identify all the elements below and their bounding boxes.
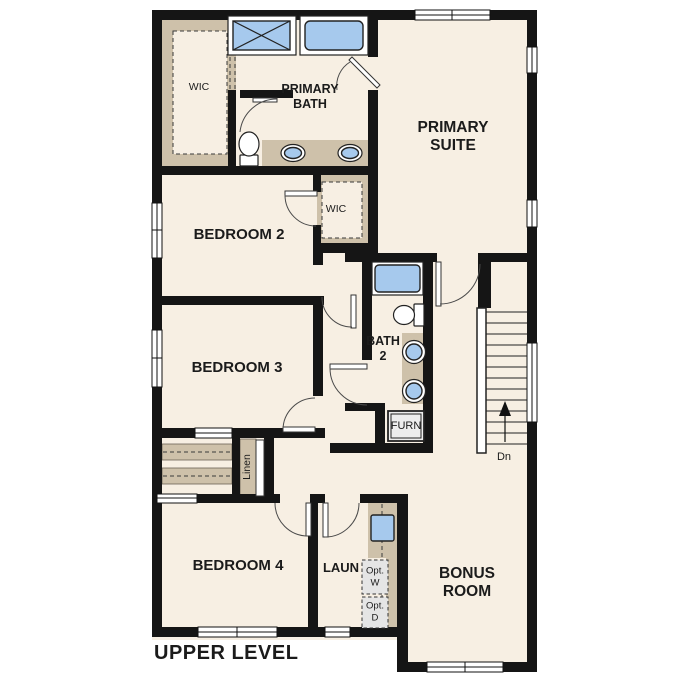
- shower: [228, 16, 296, 55]
- sink-bath2-lower: [403, 380, 426, 403]
- window: [527, 343, 537, 422]
- label-text: Dn: [497, 451, 511, 463]
- label-bedroom-2: BEDROOM 2: [194, 227, 285, 244]
- linen-door: [256, 440, 264, 496]
- label-optional-washer: Opt.W: [366, 566, 384, 589]
- label-text: BEDROOM 2: [194, 227, 285, 244]
- label-text: WIC: [189, 82, 209, 94]
- closet-bypass-door: [195, 428, 232, 438]
- label-primary-bath: PRIMARYBATH: [281, 82, 338, 112]
- label-text: BEDROOM 4: [193, 558, 284, 575]
- window: [198, 627, 277, 637]
- label-text: LAUN: [323, 561, 359, 575]
- label-stairs-down: Dn: [497, 451, 511, 463]
- label-text: BATH: [281, 97, 338, 112]
- label-text: WIC: [326, 204, 346, 216]
- window: [527, 47, 537, 73]
- label-text: ROOM: [439, 583, 495, 601]
- stair-railing: [477, 308, 486, 453]
- label-text: W: [366, 577, 384, 589]
- label-bonus-room: BONUSROOM: [439, 565, 495, 601]
- sink-bath2-upper: [403, 341, 426, 364]
- toilet-bath2: [394, 304, 425, 326]
- label-text: D: [366, 612, 384, 624]
- closet-bypass-door: [157, 494, 197, 503]
- label-text: Linen: [242, 454, 254, 480]
- toilet-primary: [239, 132, 259, 166]
- label-wic-primary: WIC: [189, 82, 209, 94]
- label-text: FURN: [391, 420, 422, 432]
- label-text: 2: [366, 349, 400, 364]
- label-bedroom-3: BEDROOM 3: [192, 360, 283, 377]
- window: [427, 662, 503, 672]
- label-bath-2: BATH2: [366, 334, 400, 364]
- label-text: BATH: [366, 334, 400, 349]
- laundry-sink: [371, 515, 394, 541]
- label-furnace: FURN: [391, 420, 422, 432]
- label-text: Opt.: [366, 601, 384, 613]
- page-title: UPPER LEVEL: [154, 642, 298, 665]
- bathtub-primary: [300, 16, 368, 55]
- label-text: PRIMARY: [281, 82, 338, 97]
- floor-plan-page: WIC PRIMARYBATH PRIMARYSUITE BEDROOM 2 W…: [0, 0, 687, 687]
- window: [152, 203, 162, 258]
- floor-plan-drawing: [0, 0, 687, 687]
- window: [325, 627, 350, 637]
- label-text: PRIMARY: [418, 119, 489, 137]
- sink-primary-left: [281, 145, 305, 162]
- window: [415, 10, 490, 20]
- label-laundry: LAUN: [323, 561, 359, 575]
- label-wic-bedroom-2: WIC: [326, 204, 346, 216]
- window: [527, 200, 537, 227]
- bathtub-bath2: [372, 262, 423, 295]
- label-text: SUITE: [418, 137, 489, 155]
- window: [152, 330, 162, 387]
- label-optional-dryer: Opt.D: [366, 601, 384, 624]
- label-linen: Linen: [242, 454, 254, 480]
- label-bedroom-4: BEDROOM 4: [193, 558, 284, 575]
- label-primary-suite: PRIMARYSUITE: [418, 119, 489, 155]
- label-text: BONUS: [439, 565, 495, 583]
- label-text: BEDROOM 3: [192, 360, 283, 377]
- sink-primary-right: [338, 145, 362, 162]
- label-text: Opt.: [366, 566, 384, 578]
